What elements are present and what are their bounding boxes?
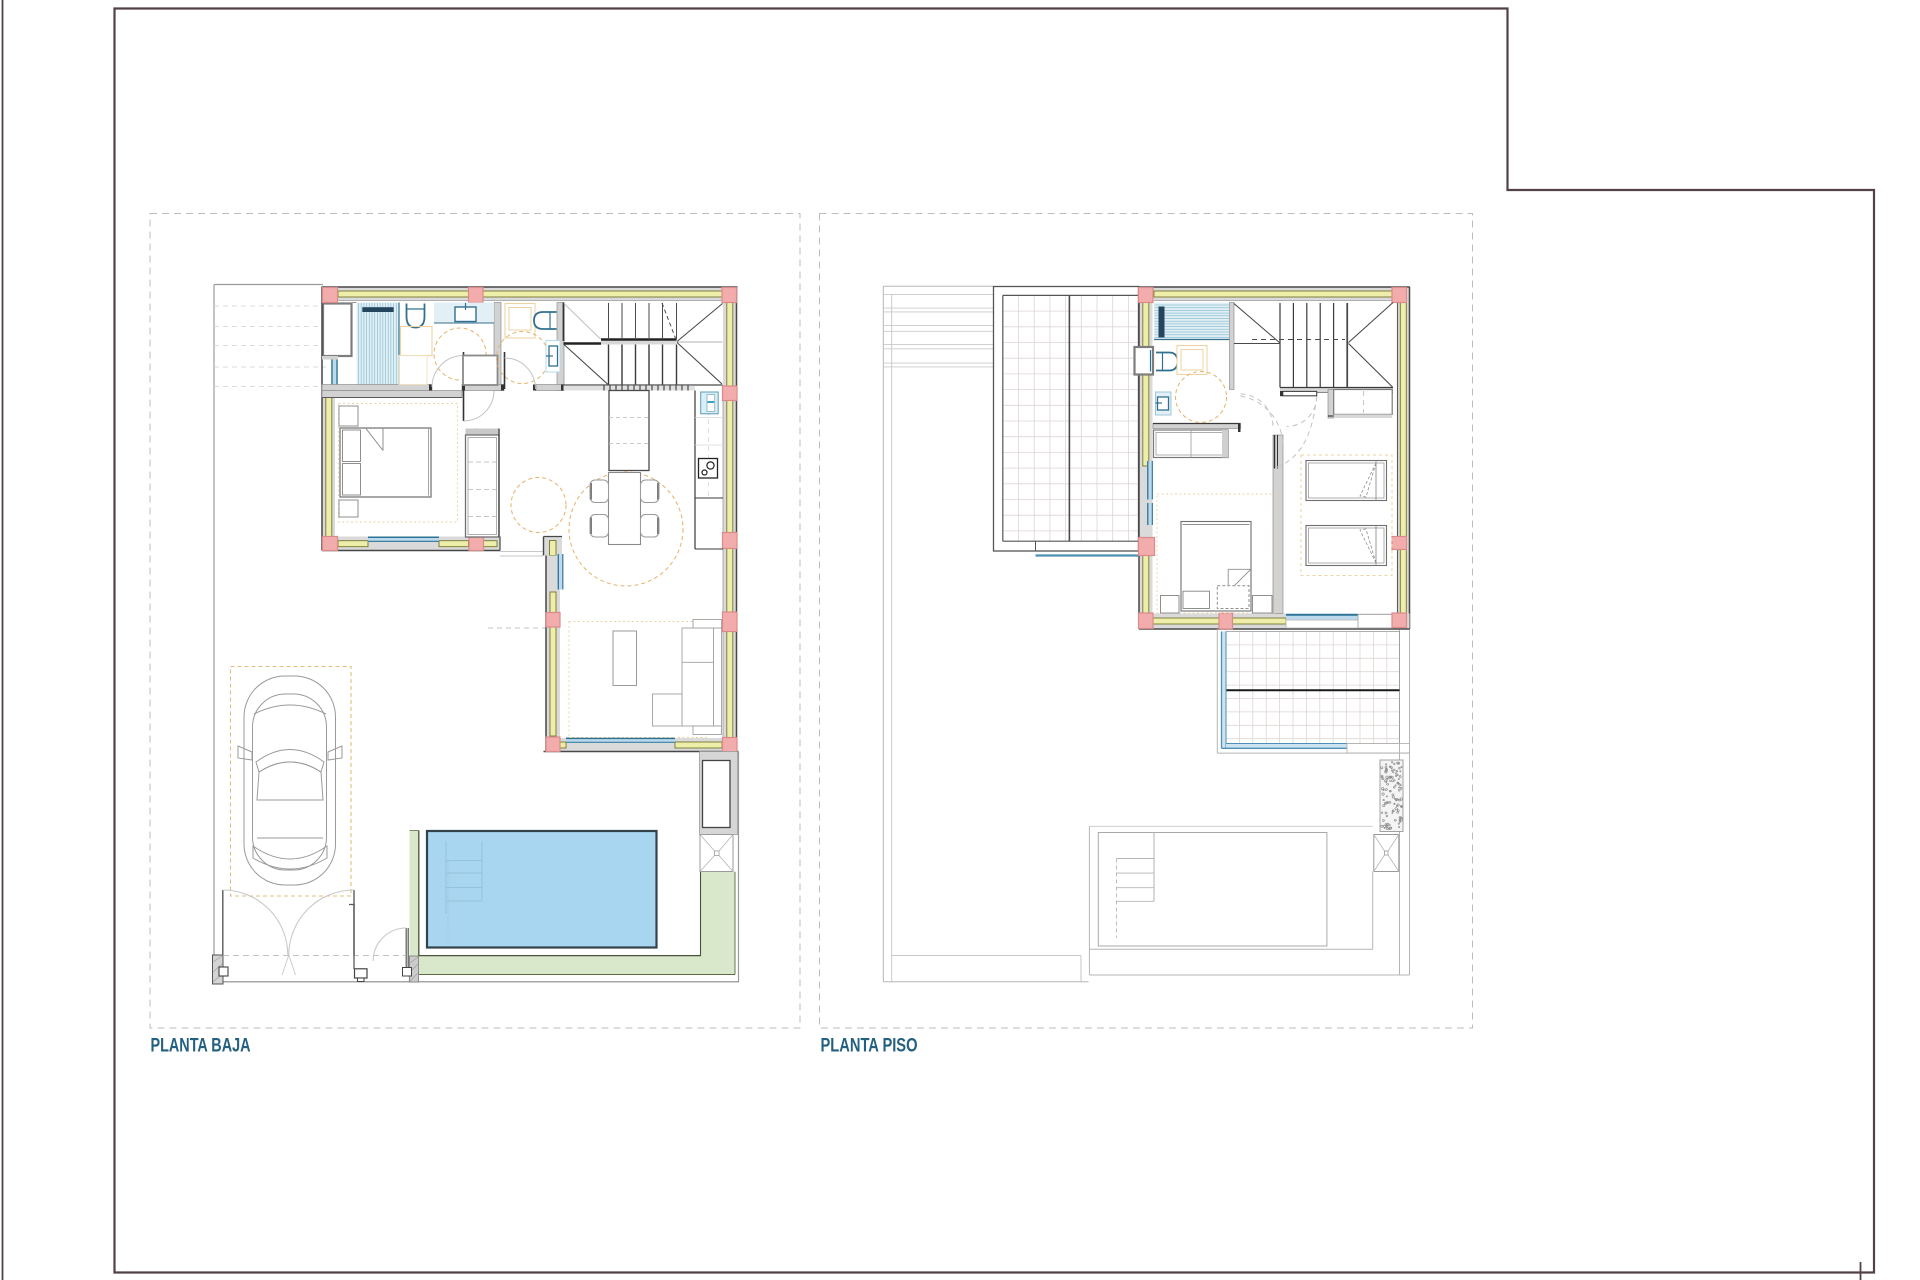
svg-text:PLANTA PISO: PLANTA PISO xyxy=(821,1035,918,1057)
svg-text:PLANTA BAJA: PLANTA BAJA xyxy=(151,1035,251,1057)
